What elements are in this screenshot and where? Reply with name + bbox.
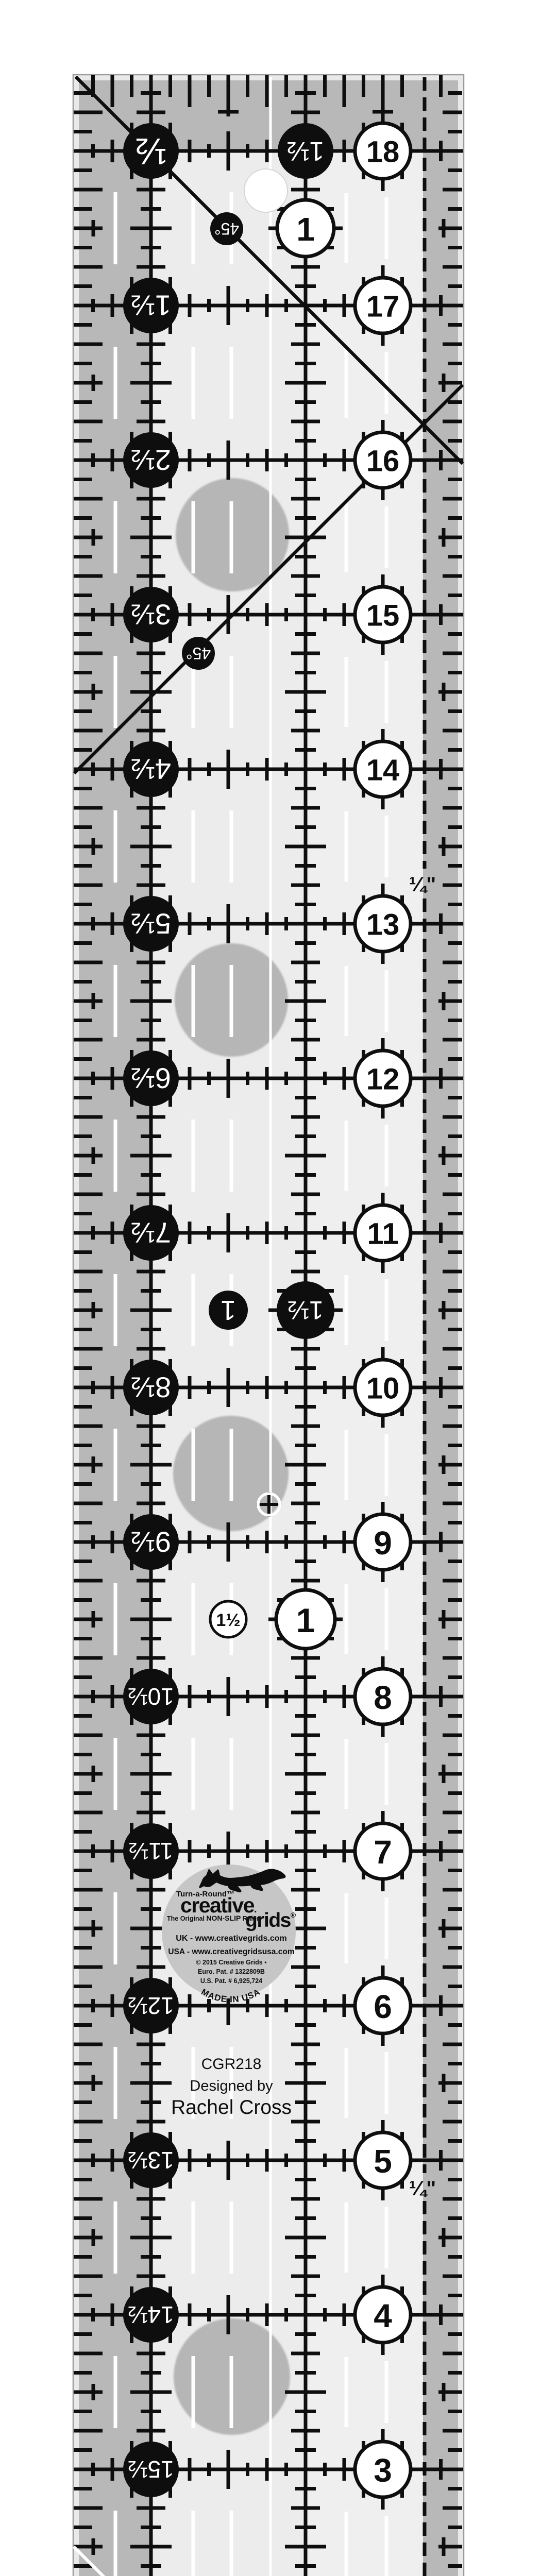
svg-text:5½: 5½ — [131, 908, 171, 940]
svg-text:1½: 1½ — [288, 1296, 324, 1325]
svg-text:17: 17 — [366, 290, 400, 324]
svg-text:1½: 1½ — [287, 136, 324, 166]
svg-text:1½: 1½ — [216, 1611, 240, 1630]
svg-text:11½: 11½ — [129, 1838, 173, 1865]
svg-text:The Original NON-SLIP Ruler: The Original NON-SLIP Ruler — [167, 1914, 259, 1922]
svg-text:13: 13 — [366, 908, 400, 942]
svg-text:12½: 12½ — [128, 1992, 174, 2019]
svg-text:3½: 3½ — [131, 599, 171, 631]
svg-text:10: 10 — [366, 1372, 400, 1405]
svg-text:6: 6 — [374, 1988, 392, 2025]
svg-text:Rachel Cross: Rachel Cross — [171, 2096, 292, 2119]
svg-text:1: 1 — [296, 211, 315, 248]
svg-text:6½: 6½ — [131, 1062, 171, 1095]
svg-text:3: 3 — [374, 2452, 392, 2489]
svg-text:U.S. Pat. # 6,925,724: U.S. Pat. # 6,925,724 — [200, 1977, 262, 1985]
svg-text:Designed by: Designed by — [190, 2078, 273, 2094]
svg-text:7½: 7½ — [131, 1217, 171, 1249]
svg-text:UK - www.creativegrids.com: UK - www.creativegrids.com — [176, 1934, 286, 1943]
svg-text:CGR218: CGR218 — [201, 2056, 262, 2073]
svg-text:2½: 2½ — [131, 444, 171, 477]
svg-text:7: 7 — [374, 1834, 392, 1871]
svg-text:Euro. Pat. # 1322809B: Euro. Pat. # 1322809B — [198, 1968, 265, 1975]
svg-text:16: 16 — [366, 445, 400, 478]
svg-text:1: 1 — [221, 1295, 236, 1326]
svg-text:½: ½ — [136, 130, 166, 172]
svg-text:15½: 15½ — [128, 2456, 174, 2483]
svg-text:14½: 14½ — [128, 2301, 174, 2328]
svg-text:5: 5 — [374, 2143, 392, 2180]
svg-text:© 2015 Creative Grids ▪: © 2015 Creative Grids ▪ — [196, 1959, 266, 1966]
svg-text:¼": ¼" — [409, 2177, 436, 2200]
svg-text:8: 8 — [374, 1679, 392, 1716]
svg-text:11: 11 — [367, 1217, 398, 1251]
svg-text:9: 9 — [374, 1524, 392, 1562]
svg-text:4½: 4½ — [131, 753, 171, 786]
svg-text:13½: 13½ — [128, 2147, 174, 2174]
svg-text:12: 12 — [366, 1063, 400, 1096]
svg-text:8½: 8½ — [131, 1371, 171, 1404]
svg-text:USA - www.creativegridsusa.com: USA - www.creativegridsusa.com — [168, 1947, 294, 1956]
svg-text:4: 4 — [374, 2297, 392, 2334]
svg-text:¼": ¼" — [409, 873, 436, 896]
svg-text:1½: 1½ — [131, 290, 171, 322]
svg-text:18: 18 — [366, 135, 400, 169]
svg-text:45°: 45° — [214, 219, 239, 238]
svg-text:1: 1 — [296, 1601, 315, 1639]
svg-text:15: 15 — [366, 599, 400, 633]
svg-text:10½: 10½ — [128, 1683, 174, 1710]
svg-text:9½: 9½ — [131, 1526, 171, 1558]
svg-text:14: 14 — [366, 754, 400, 787]
svg-text:45°: 45° — [186, 644, 211, 663]
